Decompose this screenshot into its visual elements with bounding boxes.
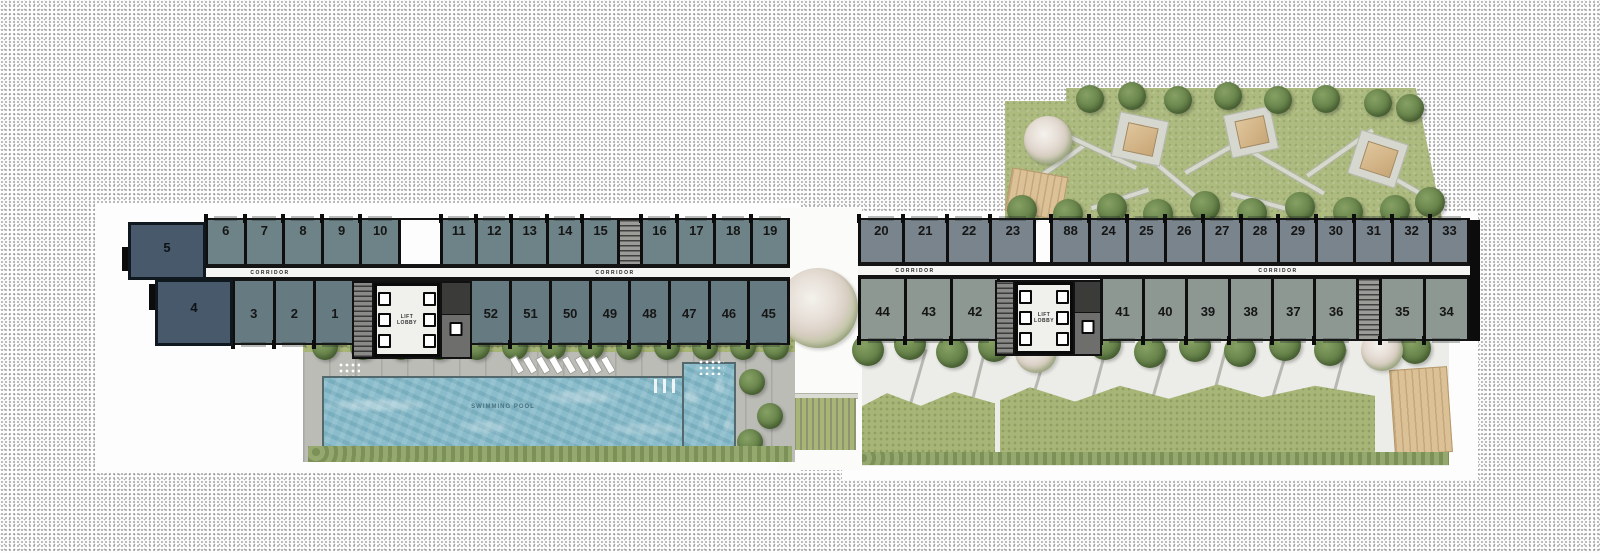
balcony-ledge (214, 216, 237, 221)
left-wing-top-row: 678910111213141516171819 (205, 218, 790, 266)
wall-tick (1239, 214, 1243, 223)
timber-deck (1389, 366, 1453, 456)
corridor-label: CORRIDOR (595, 270, 634, 276)
balcony-ledge (322, 342, 347, 347)
wall-tick (639, 214, 643, 223)
wall-tick (243, 214, 247, 223)
wall-tick (746, 340, 750, 349)
unit-9[interactable]: 9 (321, 220, 360, 264)
lift-lobby-label: LIFT LOBBY (392, 286, 422, 354)
balcony-ledge (282, 342, 307, 347)
unit-number: 3 (250, 307, 257, 343)
unit-50[interactable]: 50 (549, 281, 589, 343)
balcony-ledge (519, 216, 540, 221)
mechanical-room (1075, 282, 1100, 313)
balcony-ledge (518, 342, 542, 347)
balcony-ledge (291, 216, 314, 221)
wall-tick (749, 214, 753, 223)
unit-42[interactable]: 42 (950, 279, 996, 339)
unit-14[interactable]: 14 (546, 220, 581, 264)
balcony-ledge (637, 342, 661, 347)
unit-number: 23 (1006, 224, 1020, 262)
unit-88[interactable]: 88 (1053, 220, 1088, 262)
tree (1415, 187, 1445, 217)
wall-tick (312, 340, 316, 349)
unit-number: 49 (603, 307, 617, 343)
services-room (1073, 282, 1100, 354)
lift-car (1019, 332, 1032, 346)
unit-segment: 414039383736 (1103, 279, 1356, 339)
wall-tick (1352, 214, 1356, 223)
unit-number: 26 (1177, 224, 1191, 262)
unit-number: 29 (1291, 224, 1305, 262)
lift-lobby: LIFT LOBBY (995, 280, 1102, 356)
unit-number: 27 (1215, 224, 1229, 262)
unit-41[interactable]: 41 (1103, 279, 1143, 339)
wall-tick (667, 340, 671, 349)
unit-number: 30 (1329, 224, 1343, 262)
tree (1164, 86, 1192, 114)
unit-segment: 20212223 (861, 220, 1033, 262)
wall-tick (439, 214, 443, 223)
unit-29[interactable]: 29 (1277, 220, 1315, 262)
lift-column (422, 286, 437, 354)
balcony-ledge (1135, 216, 1158, 221)
unit-number: 41 (1115, 305, 1129, 339)
unit-19[interactable]: 19 (750, 220, 787, 264)
wall-tick (508, 340, 512, 349)
wall-tick (1227, 336, 1231, 345)
balcony-ledge (483, 216, 504, 221)
tree (1076, 85, 1104, 113)
balcony-ledge (868, 216, 895, 221)
unit-23[interactable]: 23 (989, 220, 1033, 262)
unit-5[interactable]: 5 (128, 222, 206, 280)
unit-3[interactable]: 3 (235, 281, 273, 343)
unit-number: 45 (761, 307, 775, 343)
wall-tick (1276, 214, 1280, 223)
wall-tick (675, 214, 679, 223)
wall-tick (1049, 214, 1053, 223)
wall-tick (548, 340, 552, 349)
unit-39[interactable]: 39 (1185, 279, 1228, 339)
balcony-ledge (590, 216, 611, 221)
lift-car (1056, 311, 1069, 325)
balcony-ledge (558, 342, 582, 347)
unit-number: 36 (1329, 305, 1343, 339)
balcony-ledge (1059, 216, 1082, 221)
wall-tick (712, 214, 716, 223)
left-wing-bottom-row: 3215251504948474645 (232, 279, 790, 345)
balcony-ledge (1237, 338, 1263, 343)
unit-segment: 8824252627282930313233 (1053, 220, 1467, 262)
tree (1396, 94, 1424, 122)
corridor-label: CORRIDOR (895, 268, 934, 274)
balcony-ledge (1109, 338, 1135, 343)
wall-tick (1312, 336, 1316, 345)
balcony-ledge (478, 342, 502, 347)
unit-15[interactable]: 15 (581, 220, 616, 264)
unit-number: 48 (642, 307, 656, 343)
balcony-ledge (1286, 216, 1309, 221)
hedge-strip (855, 452, 1449, 465)
tree (1364, 89, 1392, 117)
balcony-ledge (448, 216, 469, 221)
balcony-ledge (1248, 216, 1271, 221)
unit-38[interactable]: 38 (1228, 279, 1271, 339)
unit-segment: 3534 (1382, 279, 1467, 339)
lift-core: LIFT LOBBY (374, 283, 440, 357)
lawn (1000, 380, 1375, 452)
unit-segment: 5251504948474645 (472, 281, 787, 343)
unit-34[interactable]: 34 (1423, 279, 1467, 339)
balcony-ledge (914, 338, 943, 343)
unit-number: 10 (373, 224, 387, 264)
balcony-ledge (960, 338, 989, 343)
unit-number: 7 (261, 224, 268, 264)
wall-tick (1184, 336, 1188, 345)
wall-tick (988, 214, 992, 223)
unit-number: 20 (874, 224, 888, 262)
unit-number: 24 (1101, 224, 1115, 262)
wall-tick (474, 214, 478, 223)
right-wing-top-row: 202122238824252627282930313233 (858, 218, 1470, 264)
unit-number: 13 (522, 224, 536, 264)
unit-number: 25 (1139, 224, 1153, 262)
unit-36[interactable]: 36 (1313, 279, 1356, 339)
unit-48[interactable]: 48 (628, 281, 668, 343)
unit-number: 16 (652, 224, 666, 264)
lift-lobby-label: LIFT LOBBY (1033, 285, 1055, 351)
wall-tick (903, 336, 907, 345)
services-room (440, 283, 470, 357)
wall-tick (1314, 214, 1318, 223)
unit-segment: 1112131415 (443, 220, 617, 264)
wall-tick (509, 214, 513, 223)
lift-core: LIFT LOBBY (1015, 282, 1073, 354)
wall-tick (1428, 214, 1432, 223)
garden-pavilion (1122, 122, 1158, 157)
unit-24[interactable]: 24 (1088, 220, 1126, 262)
wall-tick (1378, 336, 1382, 345)
stair-core (354, 283, 374, 357)
pool-label: SWIMMING POOL (324, 404, 682, 410)
unit-11[interactable]: 11 (443, 220, 475, 264)
unit-20[interactable]: 20 (861, 220, 902, 262)
unit-45[interactable]: 45 (747, 281, 787, 343)
balcony-ledge (955, 216, 982, 221)
wall-tick (1201, 214, 1205, 223)
balcony-ledge (1210, 216, 1233, 221)
corridor: CORRIDORCORRIDOR (155, 266, 790, 279)
wall-tick (857, 336, 861, 345)
lift-car (1019, 311, 1032, 325)
pool-edge-planting (308, 446, 792, 462)
lift-column (377, 286, 392, 354)
unit-number: 5 (163, 241, 170, 277)
unit-number: 18 (726, 224, 740, 264)
tree (1118, 82, 1146, 110)
lift-car (423, 313, 436, 327)
balcony-ledge (677, 342, 701, 347)
tree (757, 403, 783, 429)
unit-number: 43 (922, 305, 936, 339)
wall-tick (1087, 214, 1091, 223)
building-opening (398, 220, 443, 264)
flowering-tree (1024, 116, 1072, 164)
unit-number: 22 (962, 224, 976, 262)
lift-column (1018, 285, 1033, 351)
unit-10[interactable]: 10 (359, 220, 398, 264)
unit-number: 31 (1366, 224, 1380, 262)
tree (739, 369, 765, 395)
unit-number: 17 (689, 224, 703, 264)
unit-number: 14 (558, 224, 572, 264)
balcony-ledge (1432, 338, 1459, 343)
unit-16[interactable]: 16 (643, 220, 677, 264)
unit-43[interactable]: 43 (904, 279, 950, 339)
unit-number: 12 (487, 224, 501, 264)
balcony-ledge (868, 338, 897, 343)
unit-1[interactable]: 1 (313, 281, 354, 343)
stair-core (997, 282, 1015, 354)
stair-core (617, 220, 643, 264)
unit-49[interactable]: 49 (589, 281, 629, 343)
unit-27[interactable]: 27 (1202, 220, 1240, 262)
wall-tick (1125, 214, 1129, 223)
unit-13[interactable]: 13 (510, 220, 545, 264)
unit-number: 1 (331, 307, 338, 343)
unit-51[interactable]: 51 (509, 281, 549, 343)
lift-lobby: LIFT LOBBY (352, 281, 472, 359)
lift-car (1081, 320, 1094, 334)
balcony-ledge (1324, 216, 1347, 221)
flowering-tree (778, 268, 858, 348)
balcony-ledge (1438, 216, 1461, 221)
wall-tick (1390, 214, 1394, 223)
unit-number: 19 (763, 224, 777, 264)
wall-tick (945, 214, 949, 223)
unit-number: 44 (875, 305, 889, 339)
unit-number: 6 (222, 224, 229, 264)
unit-52[interactable]: 52 (472, 281, 509, 343)
unit-number: 4 (190, 301, 197, 343)
balcony-ledge (1362, 216, 1385, 221)
balcony-ledge (368, 216, 391, 221)
unit-number: 9 (338, 224, 345, 264)
unit-37[interactable]: 37 (1271, 279, 1314, 339)
unit-segment: 16171819 (643, 220, 787, 264)
balcony-ledge (685, 216, 707, 221)
unit-number: 28 (1253, 224, 1267, 262)
unit-segment: 321 (235, 281, 354, 343)
unit-number: 37 (1286, 305, 1300, 339)
lawn (860, 388, 995, 452)
lift-column (1055, 285, 1070, 351)
corridor-label: CORRIDOR (1258, 268, 1297, 274)
balcony-ledge (554, 216, 575, 221)
unit-number: 21 (918, 224, 932, 262)
lift-car (1056, 332, 1069, 346)
unit-25[interactable]: 25 (1126, 220, 1164, 262)
wall-tick (272, 340, 276, 349)
wall-tick (949, 336, 953, 345)
unit-2[interactable]: 2 (273, 281, 314, 343)
balcony-ledge (1152, 338, 1178, 343)
unit-4[interactable]: 4 (155, 279, 233, 346)
unit-32[interactable]: 32 (1391, 220, 1429, 262)
lift-car (423, 334, 436, 348)
lift-car (1019, 290, 1032, 304)
wall-tick (545, 214, 549, 223)
balcony-ledge (597, 342, 621, 347)
unit-47[interactable]: 47 (668, 281, 708, 343)
unit-21[interactable]: 21 (902, 220, 946, 262)
swimming-pool: SWIMMING POOL (322, 376, 684, 448)
tree (1312, 85, 1340, 113)
wall-tick (281, 214, 285, 223)
lift-car (1056, 290, 1069, 304)
pool-steps (654, 379, 680, 393)
balcony-ledge (759, 216, 781, 221)
unit-number: 35 (1395, 305, 1409, 339)
unit-22[interactable]: 22 (946, 220, 990, 262)
unit-number: 15 (593, 224, 607, 264)
unit-46[interactable]: 46 (708, 281, 748, 343)
balcony-ledge (756, 342, 780, 347)
balcony-ledge (648, 216, 670, 221)
corridor: CORRIDORCORRIDOR (858, 264, 1470, 277)
unit-35[interactable]: 35 (1382, 279, 1423, 339)
stair-core (1356, 279, 1382, 339)
unit-number: 42 (968, 305, 982, 339)
balcony-ledge (999, 216, 1026, 221)
unit-segment: 444342 (861, 279, 997, 339)
unit-number: 39 (1201, 305, 1215, 339)
wall-tick (857, 214, 861, 223)
unit-6[interactable]: 6 (208, 220, 244, 264)
unit-segment: 678910 (208, 220, 398, 264)
unit-18[interactable]: 18 (713, 220, 750, 264)
unit-number: 50 (563, 307, 577, 343)
wall-tick (358, 214, 362, 223)
unit-number: 2 (291, 307, 298, 343)
mosaic-tiles (698, 359, 724, 375)
balcony-ledge (722, 216, 744, 221)
tree (1264, 86, 1292, 114)
lift-car (378, 292, 391, 306)
lift-car (378, 334, 391, 348)
wall-tick (320, 214, 324, 223)
wall-tick (1270, 336, 1274, 345)
balcony-ledge (911, 216, 938, 221)
unit-number: 47 (682, 307, 696, 343)
unit-number: 51 (523, 307, 537, 343)
unit-33[interactable]: 33 (1429, 220, 1467, 262)
unit-40[interactable]: 40 (1142, 279, 1185, 339)
wall-tick (588, 340, 592, 349)
balcony-ledge (1172, 216, 1195, 221)
unit-number: 52 (484, 307, 498, 343)
wall-tick (1141, 336, 1145, 345)
balcony-ledge (1323, 338, 1349, 343)
right-wing-bottom-row: 4443424140393837363534 (858, 277, 1470, 341)
lift-car (450, 322, 463, 336)
balcony-ledge (1280, 338, 1306, 343)
unit-number: 88 (1063, 224, 1077, 262)
balcony-ledge (1194, 338, 1220, 343)
balcony-ledge (329, 216, 352, 221)
unit-26[interactable]: 26 (1164, 220, 1202, 262)
balcony-ledge (716, 342, 740, 347)
unit-28[interactable]: 28 (1240, 220, 1278, 262)
unit-number: 34 (1439, 305, 1453, 339)
unit-7[interactable]: 7 (244, 220, 283, 264)
floor-plan-canvas: SWIMMING POOL CORRIDORCORRIDOR6789101112… (0, 0, 1600, 553)
tree (1214, 82, 1242, 110)
lift-car (378, 313, 391, 327)
mosaic-tiles (338, 362, 360, 376)
wall-tick (901, 214, 905, 223)
unit-30[interactable]: 30 (1315, 220, 1353, 262)
mechanical-room (442, 283, 470, 315)
unit-12[interactable]: 12 (475, 220, 510, 264)
corridor-label: CORRIDOR (250, 270, 289, 276)
unit-number: 46 (722, 307, 736, 343)
wall-tick (1163, 214, 1167, 223)
wall-tick (707, 340, 711, 349)
unit-number: 32 (1404, 224, 1418, 262)
unit-number: 8 (299, 224, 306, 264)
unit-number: 40 (1158, 305, 1172, 339)
wall-tick (627, 340, 631, 349)
wall-tick (1422, 336, 1426, 345)
unit-number: 38 (1243, 305, 1257, 339)
lift-car (423, 292, 436, 306)
wall-tick (580, 214, 584, 223)
balcony-ledge (241, 342, 266, 347)
balcony-ledge (1097, 216, 1120, 221)
unit-number: 11 (452, 224, 466, 264)
unit-8[interactable]: 8 (282, 220, 321, 264)
building-opening (1033, 220, 1053, 262)
unit-number: 33 (1442, 224, 1456, 262)
balcony-ledge (1388, 338, 1415, 343)
end-wall (1470, 220, 1480, 341)
unit-44[interactable]: 44 (861, 279, 904, 339)
balcony-ledge (1400, 216, 1423, 221)
unit-31[interactable]: 31 (1353, 220, 1391, 262)
balcony-ledge (252, 216, 275, 221)
unit-17[interactable]: 17 (676, 220, 713, 264)
